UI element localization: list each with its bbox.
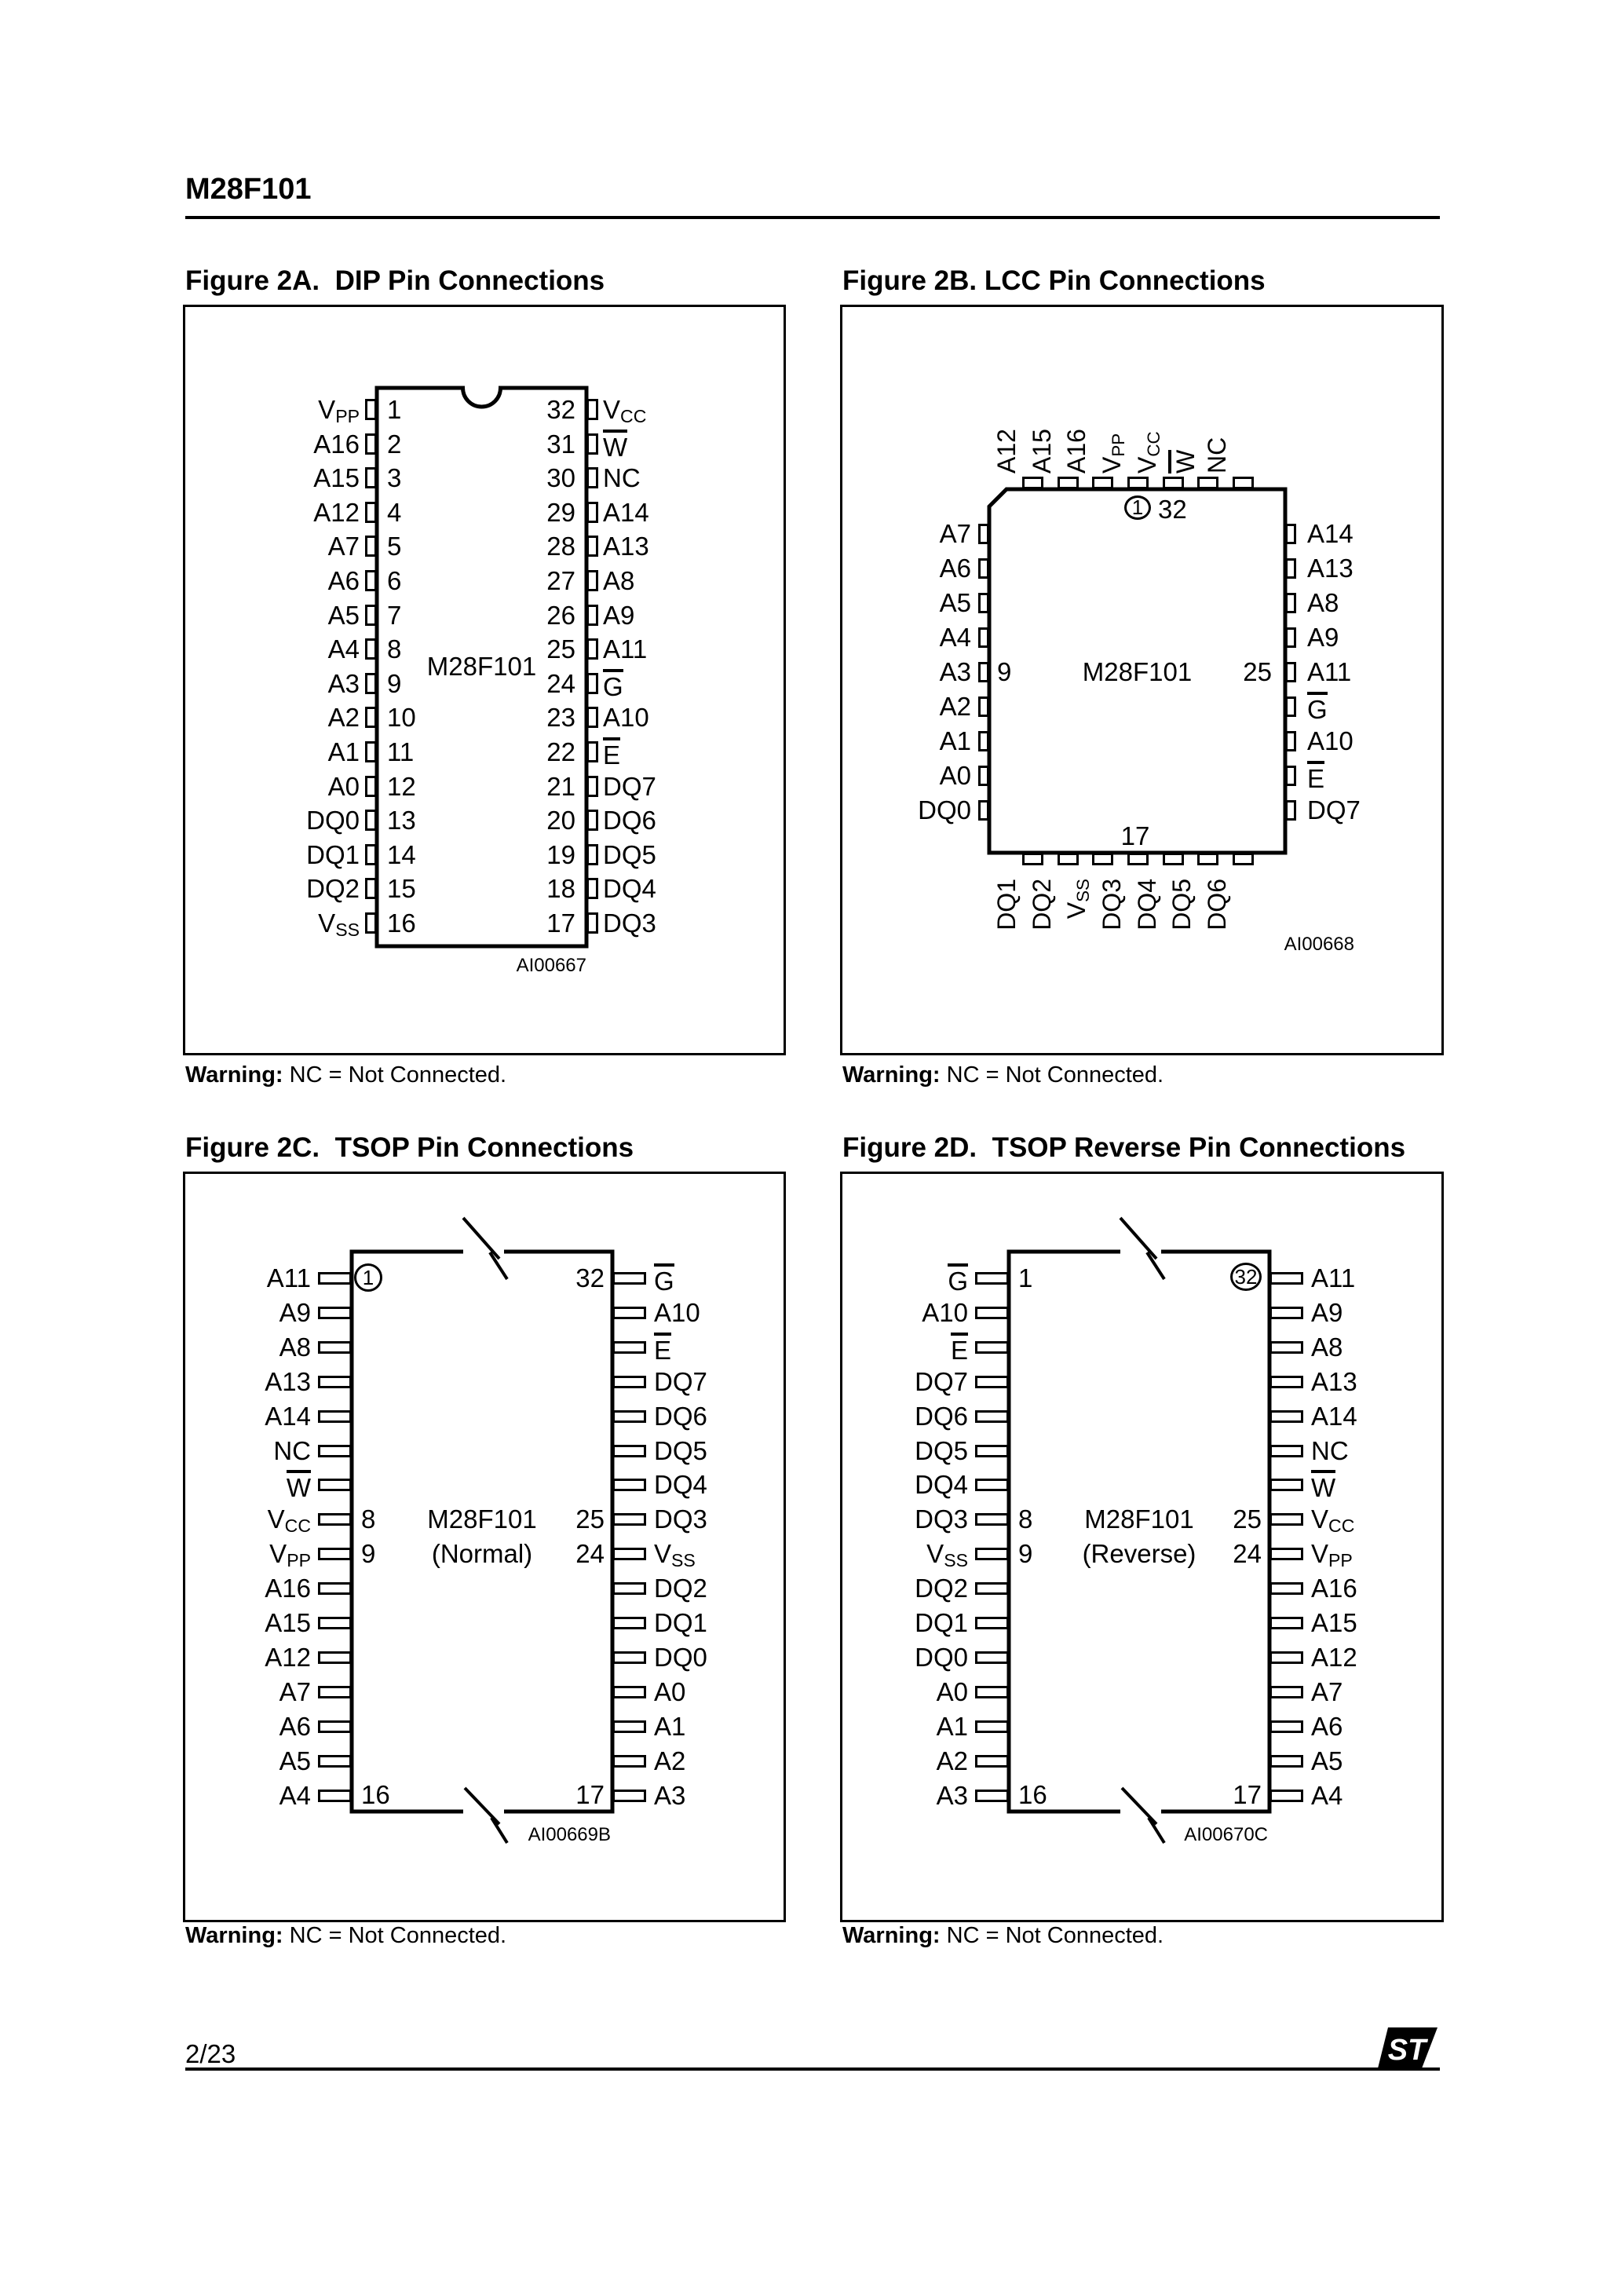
overline: E — [654, 1333, 671, 1363]
pin-label: A2 — [185, 703, 360, 733]
pin-stub — [318, 1582, 352, 1595]
pin-stub — [1269, 1513, 1303, 1526]
pin-stub — [612, 1307, 646, 1319]
warning-2a: Warning: NC = Not Connected. — [185, 1062, 506, 1088]
pin-stub — [365, 467, 377, 488]
pin-number: 30 — [473, 463, 575, 493]
overline: E — [951, 1333, 968, 1363]
pin-label: A8 — [185, 1333, 311, 1362]
pin-label: A3 — [185, 669, 360, 699]
warning-2c: Warning: NC = Not Connected. — [185, 1922, 506, 1949]
pin-label: A12 — [993, 379, 1020, 473]
pin-label: A3 — [842, 1781, 968, 1811]
pin-stub — [612, 1720, 646, 1733]
pin-stub — [318, 1790, 352, 1802]
subscript: PP — [287, 1550, 311, 1570]
pin-stub — [978, 731, 989, 751]
pin-stub — [978, 558, 989, 579]
pin-label: DQ5 — [654, 1436, 707, 1466]
pin-stub — [365, 605, 377, 626]
pin-label: A6 — [185, 1712, 311, 1742]
pin-stub — [978, 524, 989, 544]
pin-label: W — [603, 430, 627, 462]
pin-label: DQ6 — [1204, 879, 1230, 973]
pin-label: G — [654, 1263, 674, 1296]
pin-label: A13 — [1311, 1367, 1357, 1397]
pin-number: 16 — [361, 1780, 390, 1810]
pin-label: NC — [1311, 1436, 1349, 1466]
pin-stub — [612, 1582, 646, 1595]
pin-number: 18 — [473, 874, 575, 904]
pin-stub — [586, 467, 598, 488]
pin-label: VSS — [185, 909, 360, 941]
pin-stub — [1269, 1307, 1303, 1319]
pin-label: DQ2 — [1028, 879, 1055, 973]
pin-stub — [1269, 1445, 1303, 1457]
circled-pin-number: 1 — [1124, 495, 1151, 520]
figure-2b-box: A12A15A16VPPVCCWNC132A7A6A5A4A3A2A1A0DQ0… — [840, 305, 1444, 1055]
figure-2a-box: VPP1A162A153A124A75A66A57A48A39A210A111A… — [183, 305, 786, 1055]
figure-2d-box: GA10EDQ7DQ6DQ5DQ4DQ3VSSDQ2DQ1DQ0A0A1A2A3… — [840, 1172, 1444, 1922]
pin-label: E — [654, 1333, 671, 1366]
pin-stub — [1285, 800, 1296, 821]
overline: G — [603, 669, 623, 700]
pin-label: A10 — [603, 703, 649, 733]
pin-stub — [978, 627, 989, 648]
overline: G — [1307, 692, 1328, 722]
figure-ref-code: AI00667 — [429, 955, 586, 977]
subscript: CC — [620, 406, 646, 426]
pin-label: A13 — [185, 1367, 311, 1397]
pin-label: A7 — [1311, 1677, 1343, 1707]
document-title: M28F101 — [185, 173, 312, 207]
pin-stub — [975, 1272, 1009, 1285]
pin-stub — [586, 399, 598, 420]
pin-stub — [1233, 853, 1254, 865]
pin-label: VSS — [654, 1539, 696, 1571]
pin-stub — [1285, 627, 1296, 648]
pin-label: VCC — [1134, 379, 1160, 473]
pin-label: DQ4 — [1134, 879, 1160, 973]
pin-stub — [975, 1410, 1009, 1423]
pin-stub — [1269, 1651, 1303, 1664]
figure-2d-title: Figure 2D. TSOP Reverse Pin Connections — [842, 1132, 1405, 1164]
page-number: 2/23 — [185, 2039, 236, 2069]
pin-stub — [612, 1755, 646, 1768]
pin-label: E — [842, 1333, 968, 1366]
pin-number: 10 — [387, 703, 416, 733]
pin-label: A12 — [1311, 1643, 1357, 1673]
pin-stub — [975, 1548, 1009, 1560]
pin-stub — [975, 1445, 1009, 1457]
pin-label: A11 — [1311, 1263, 1355, 1293]
pin-stub — [365, 433, 377, 455]
pin-stub — [586, 502, 598, 523]
pin-label: VCC — [603, 395, 646, 427]
pin-label: NC — [185, 1436, 311, 1466]
pin-stub — [1127, 853, 1149, 865]
pin-label: W — [1168, 379, 1195, 473]
pin-stub — [1269, 1755, 1303, 1768]
pin-label: A14 — [185, 1402, 311, 1431]
pin-label: DQ4 — [654, 1470, 707, 1500]
chip-name: M28F101 — [352, 1504, 612, 1534]
pin-number: 1 — [1018, 1263, 1032, 1293]
pin-stub — [975, 1686, 1009, 1698]
pin-stub — [586, 878, 598, 899]
pin-number: 15 — [387, 874, 416, 904]
pin-label: A8 — [1311, 1333, 1343, 1362]
pin-number: 21 — [473, 772, 575, 802]
pin-number: 23 — [473, 703, 575, 733]
pin-label: A14 — [603, 498, 649, 528]
subscript: SS — [335, 919, 360, 940]
pin-stub — [612, 1617, 646, 1629]
pin-label: A4 — [1311, 1781, 1343, 1811]
warning-text: NC = Not Connected. — [941, 1923, 1164, 1948]
pin-label: A10 — [654, 1298, 700, 1328]
pin-stub — [1285, 731, 1296, 751]
pin-label: A10 — [1307, 726, 1353, 756]
pin-stub — [318, 1686, 352, 1698]
pin-label: E — [603, 737, 620, 770]
pin-stub — [318, 1307, 352, 1319]
pin-stub — [586, 707, 598, 728]
circled-pin-number: 32 — [1230, 1263, 1262, 1291]
pin-label: A11 — [603, 634, 647, 664]
pin-label: A6 — [185, 566, 360, 596]
pin-stub — [1058, 477, 1079, 489]
pin-number: 22 — [473, 737, 575, 767]
pin-label: A2 — [842, 1746, 968, 1776]
pin-label: DQ0 — [842, 795, 971, 825]
pin-label: A3 — [842, 657, 971, 687]
pin-label: DQ3 — [603, 909, 656, 938]
pin-stub — [586, 844, 598, 865]
pin-label: DQ2 — [842, 1574, 968, 1603]
overline: W — [1168, 450, 1198, 473]
pin-stub — [586, 638, 598, 660]
pin-stub — [1269, 1686, 1303, 1698]
chip-name: M28F101 — [377, 652, 586, 682]
pin-label: DQ6 — [842, 1402, 968, 1431]
warning-label: Warning: — [842, 1062, 941, 1088]
pin-stub — [1269, 1720, 1303, 1733]
pin-stub — [612, 1341, 646, 1354]
pin-number: 3 — [387, 463, 401, 493]
pin-label: DQ1 — [185, 840, 360, 870]
pin-label: VPP — [185, 395, 360, 427]
pin-stub — [1269, 1582, 1303, 1595]
pin-stub — [318, 1651, 352, 1664]
pin-label: VSS — [842, 1539, 968, 1571]
svg-text:ST: ST — [1388, 2034, 1428, 2067]
pin-number: 17 — [473, 909, 575, 938]
overline: W — [603, 430, 627, 460]
figure-2c-box: A11A9A8A13A14NCWVCCVPPA16A15A12A7A6A5A4G… — [183, 1172, 786, 1922]
pin-stub — [1197, 477, 1218, 489]
st-logo: ST — [1378, 2027, 1438, 2068]
pin-label: DQ3 — [842, 1504, 968, 1534]
pin-label: A1 — [842, 726, 971, 756]
pin-stub — [365, 707, 377, 728]
pin-label: VSS — [1063, 879, 1090, 973]
pin-label: A1 — [185, 737, 360, 767]
pin-stub — [1022, 477, 1043, 489]
pin-stub — [586, 741, 598, 762]
pin-label: A4 — [842, 623, 971, 653]
pin-label: A9 — [1311, 1298, 1343, 1328]
pin-label: A10 — [842, 1298, 968, 1328]
pin-label: A7 — [185, 1677, 311, 1707]
pin-stub — [612, 1272, 646, 1285]
pin-stub — [365, 776, 377, 797]
pin-stub — [1269, 1341, 1303, 1354]
figure-2b-title: Figure 2B. LCC Pin Connections — [842, 265, 1266, 297]
pin-number: 32 — [502, 1263, 605, 1293]
pin-stub — [365, 810, 377, 831]
pin-label: A2 — [842, 692, 971, 722]
pin-stub — [1269, 1410, 1303, 1423]
figure-2a-title: Figure 2A. DIP Pin Connections — [185, 265, 605, 297]
pin-stub — [1092, 853, 1113, 865]
warning-label: Warning: — [185, 1923, 283, 1948]
pin-stub — [1285, 558, 1296, 579]
pin-label: VPP — [1098, 379, 1125, 473]
pin-stub — [1285, 696, 1296, 717]
pin-label: A5 — [185, 601, 360, 631]
pin-stub — [365, 502, 377, 523]
circled-pin-number: 1 — [354, 1263, 382, 1292]
subscript: PP — [1328, 1550, 1353, 1570]
footer-rule — [185, 2067, 1440, 2071]
pin-stub — [1269, 1617, 1303, 1629]
figure-ref-code: AI00670C — [1111, 1824, 1268, 1846]
pin-stub — [978, 800, 989, 821]
pin-stub — [318, 1272, 352, 1285]
pin-label: VCC — [185, 1504, 311, 1537]
pin-label: DQ7 — [1307, 795, 1361, 825]
pin-stub — [365, 570, 377, 591]
figure-ref-code: AI00669B — [454, 1824, 611, 1846]
pin-number: 26 — [473, 601, 575, 631]
pin-number: 13 — [387, 806, 416, 835]
pin-stub — [1163, 477, 1184, 489]
pin-number: 12 — [387, 772, 416, 802]
pin-label: A15 — [1028, 379, 1055, 473]
pin-stub — [975, 1651, 1009, 1664]
pin-label: A6 — [842, 554, 971, 583]
pin-stub — [586, 673, 598, 694]
pin-number: 5 — [387, 532, 401, 561]
pin-label: DQ3 — [654, 1504, 707, 1534]
overline: G — [654, 1263, 674, 1294]
chip-name: M28F101 — [1009, 1504, 1269, 1534]
warning-2b: Warning: NC = Not Connected. — [842, 1062, 1164, 1088]
pin-label: A14 — [1307, 519, 1353, 549]
pin-stub — [975, 1479, 1009, 1491]
dip-diagram: VPP1A162A153A124A75A66A57A48A39A210A111A… — [185, 307, 784, 1053]
pin-stub — [365, 844, 377, 865]
pin-stub — [612, 1686, 646, 1698]
pin-label: A5 — [842, 588, 971, 618]
pin-stub — [612, 1445, 646, 1457]
warning-text: NC = Not Connected. — [283, 1062, 507, 1088]
pin-label: A1 — [654, 1712, 685, 1742]
pin-label: A15 — [185, 1608, 311, 1638]
pin-label: DQ7 — [603, 772, 656, 802]
pin-stub — [1285, 662, 1296, 682]
pin-stub — [612, 1548, 646, 1560]
figure-ref-code: AI00668 — [1197, 934, 1354, 956]
subscript: PP — [335, 406, 360, 426]
pin-number: 4 — [387, 498, 401, 528]
warning-label: Warning: — [185, 1062, 283, 1088]
pin-stub — [586, 433, 598, 455]
pin-number: 11 — [387, 737, 414, 767]
pin-stub — [975, 1307, 1009, 1319]
pin-stub — [1269, 1272, 1303, 1285]
warning-label: Warning: — [842, 1923, 941, 1948]
pin-label: DQ5 — [842, 1436, 968, 1466]
pin-label: A16 — [185, 430, 360, 459]
pin-label: A0 — [842, 761, 971, 791]
pin-label: A8 — [1307, 588, 1339, 618]
subscript: CC — [1144, 431, 1164, 456]
page: M28F101 Figure 2A. DIP Pin Connections F… — [0, 0, 1622, 2296]
pin-stub — [586, 810, 598, 831]
pin-label: A0 — [654, 1677, 685, 1707]
subscript: CC — [1328, 1515, 1354, 1536]
pin-number: 6 — [387, 566, 401, 596]
pin-label: DQ7 — [654, 1367, 707, 1397]
pin-stub — [1285, 766, 1296, 786]
pin-label: DQ0 — [185, 806, 360, 835]
pin-number: 17 — [502, 1780, 605, 1810]
subscript: SS — [671, 1550, 696, 1570]
overline: W — [1311, 1470, 1335, 1501]
pin-stub — [1269, 1548, 1303, 1560]
pin-stub — [586, 912, 598, 934]
overline: W — [287, 1470, 311, 1501]
pin-stub — [975, 1790, 1009, 1802]
pin-stub — [1269, 1376, 1303, 1388]
pin-stub — [365, 912, 377, 934]
pin-label: DQ6 — [603, 806, 656, 835]
pin-label: A15 — [1311, 1608, 1357, 1638]
pin-stub — [1269, 1790, 1303, 1802]
pin-stub — [612, 1651, 646, 1664]
pin-stub — [318, 1548, 352, 1560]
pin-label: G — [842, 1263, 968, 1296]
pin-stub — [318, 1410, 352, 1423]
pin-stub — [612, 1479, 646, 1491]
pin-stub — [318, 1755, 352, 1768]
pin-stub — [586, 605, 598, 626]
pin-stub — [975, 1582, 1009, 1595]
pin-stub — [1092, 477, 1113, 489]
pin-number: 17 — [1057, 821, 1214, 851]
pin-stub — [612, 1376, 646, 1388]
pin-stub — [975, 1720, 1009, 1733]
pin-number: 20 — [473, 806, 575, 835]
pin-stub — [1197, 853, 1218, 865]
pin-stub — [612, 1410, 646, 1423]
pin-label: NC — [603, 463, 641, 493]
pin-label: A7 — [842, 519, 971, 549]
pin-label: A1 — [842, 1712, 968, 1742]
lcc-diagram: A12A15A16VPPVCCWNC132A7A6A5A4A3A2A1A0DQ0… — [842, 307, 1441, 1053]
pin-stub — [365, 673, 377, 694]
pin-stub — [318, 1720, 352, 1733]
pin-label: A13 — [603, 532, 649, 561]
chip-variant: (Normal) — [352, 1539, 612, 1569]
pin-stub — [318, 1513, 352, 1526]
pin-label: VPP — [1311, 1539, 1353, 1571]
pin-stub — [975, 1755, 1009, 1768]
pin-label: A3 — [654, 1781, 685, 1811]
pin-stub — [318, 1445, 352, 1457]
pin-stub — [318, 1341, 352, 1354]
pin-stub — [1269, 1479, 1303, 1491]
pin-label: A2 — [654, 1746, 685, 1776]
pin-label: A9 — [185, 1298, 311, 1328]
pin-stub — [365, 638, 377, 660]
pin-label: A8 — [603, 566, 634, 596]
warning-2d: Warning: NC = Not Connected. — [842, 1922, 1164, 1949]
pin-label: A11 — [1307, 657, 1351, 687]
pin-label: A16 — [1063, 379, 1090, 473]
pin-stub — [1233, 477, 1254, 489]
pin-label: A13 — [1307, 554, 1353, 583]
pin-label: A7 — [185, 532, 360, 561]
pin-number: 14 — [387, 840, 416, 870]
pin-label: DQ5 — [603, 840, 656, 870]
pin-label: DQ1 — [654, 1608, 707, 1638]
pin-label: A4 — [185, 634, 360, 664]
warning-text: NC = Not Connected. — [283, 1923, 507, 1948]
pin-stub — [586, 570, 598, 591]
pin-label: A16 — [185, 1574, 311, 1603]
pin-stub — [586, 536, 598, 557]
overline: G — [948, 1263, 968, 1294]
tsop-reverse-diagram: GA10EDQ7DQ6DQ5DQ4DQ3VSSDQ2DQ1DQ0A0A1A2A3… — [842, 1174, 1441, 1920]
pin-stub — [975, 1341, 1009, 1354]
pin-label: A9 — [603, 601, 634, 631]
pin-label: A12 — [185, 498, 360, 528]
warning-text: NC = Not Connected. — [941, 1062, 1164, 1088]
pin-label: W — [185, 1470, 311, 1503]
pin-number: 31 — [473, 430, 575, 459]
pin-number: 16 — [387, 909, 416, 938]
pin-stub — [1285, 524, 1296, 544]
pin-label: NC — [1204, 379, 1230, 473]
pin-label: DQ1 — [993, 879, 1020, 973]
pin-label: A15 — [185, 463, 360, 493]
pin-stub — [1163, 853, 1184, 865]
subscript: CC — [285, 1515, 311, 1536]
pin-stub — [1058, 853, 1079, 865]
pin-stub — [1127, 477, 1149, 489]
pin-stub — [1285, 593, 1296, 613]
pin-number: 1 — [387, 395, 401, 425]
pin-label: DQ6 — [654, 1402, 707, 1431]
pin-stub — [586, 776, 598, 797]
pin-number: 32 — [473, 395, 575, 425]
subscript: SS — [944, 1550, 968, 1570]
pin-label: A5 — [185, 1746, 311, 1776]
pin-label: VPP — [185, 1539, 311, 1571]
